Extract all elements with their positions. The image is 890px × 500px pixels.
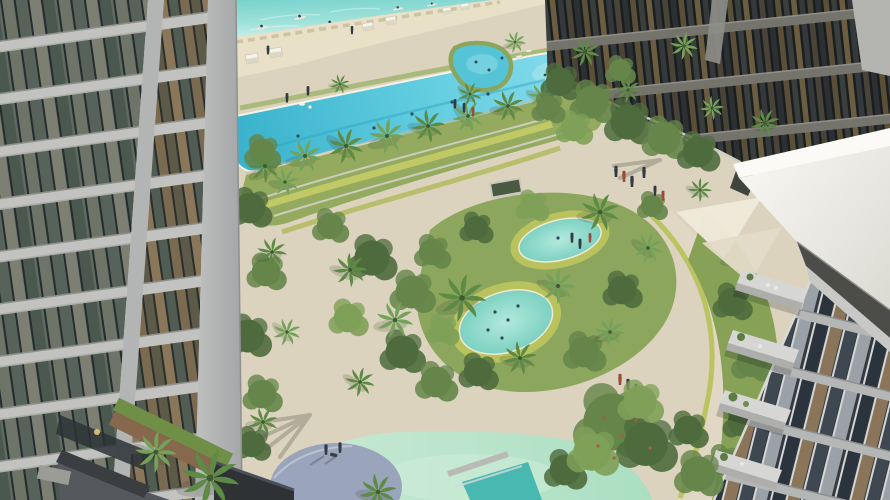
aerial-render-canvas: Aerial rendering of a beachfront residen…	[0, 0, 890, 500]
aerial-rendering: Aerial rendering of a beachfront residen…	[0, 0, 890, 500]
left-residential-towers	[0, 0, 242, 500]
